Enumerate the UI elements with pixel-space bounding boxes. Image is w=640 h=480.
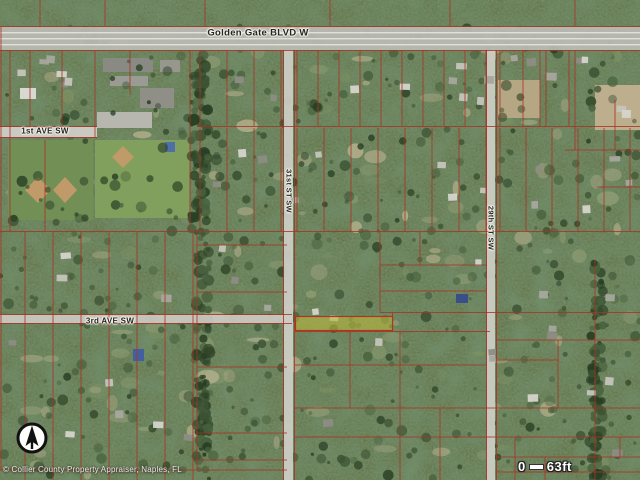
road-label-3rd-ave-sw: 3rd AVE SW [86, 317, 134, 326]
feature-rect [456, 294, 468, 303]
map-scale-bar: 0 63ft [518, 459, 572, 474]
north-arrow-icon [15, 421, 49, 455]
feature-rect [133, 349, 144, 361]
feature-rect [97, 112, 152, 128]
scale-bar-line [530, 465, 543, 469]
selected-parcel[interactable] [296, 317, 393, 331]
scale-end-label: 63ft [547, 459, 572, 474]
road-29th-st-sw [487, 50, 495, 480]
selected-parcel-highlight [296, 317, 393, 331]
aerial-map-canvas[interactable] [0, 0, 640, 480]
road-label-1st-ave-sw: 1st AVE SW [21, 127, 68, 136]
road-label-golden-gate-blvd-w: Golden Gate BLVD W [207, 28, 308, 39]
road-31st-st-sw [284, 50, 293, 480]
road-label-29th-st-sw: 29th ST SW [487, 206, 496, 250]
road-3rd-ave-sw [0, 315, 292, 323]
copyright-attribution: © Collier County Property Appraiser, Nap… [3, 465, 182, 474]
north-arrow-stem [31, 442, 33, 450]
scale-start-label: 0 [518, 459, 526, 474]
map-viewport: Golden Gate BLVD W 1st AVE SW 3rd AVE SW… [0, 0, 640, 480]
feature-rect [20, 88, 36, 99]
road-label-31st-st-sw: 31st ST SW [285, 169, 294, 213]
